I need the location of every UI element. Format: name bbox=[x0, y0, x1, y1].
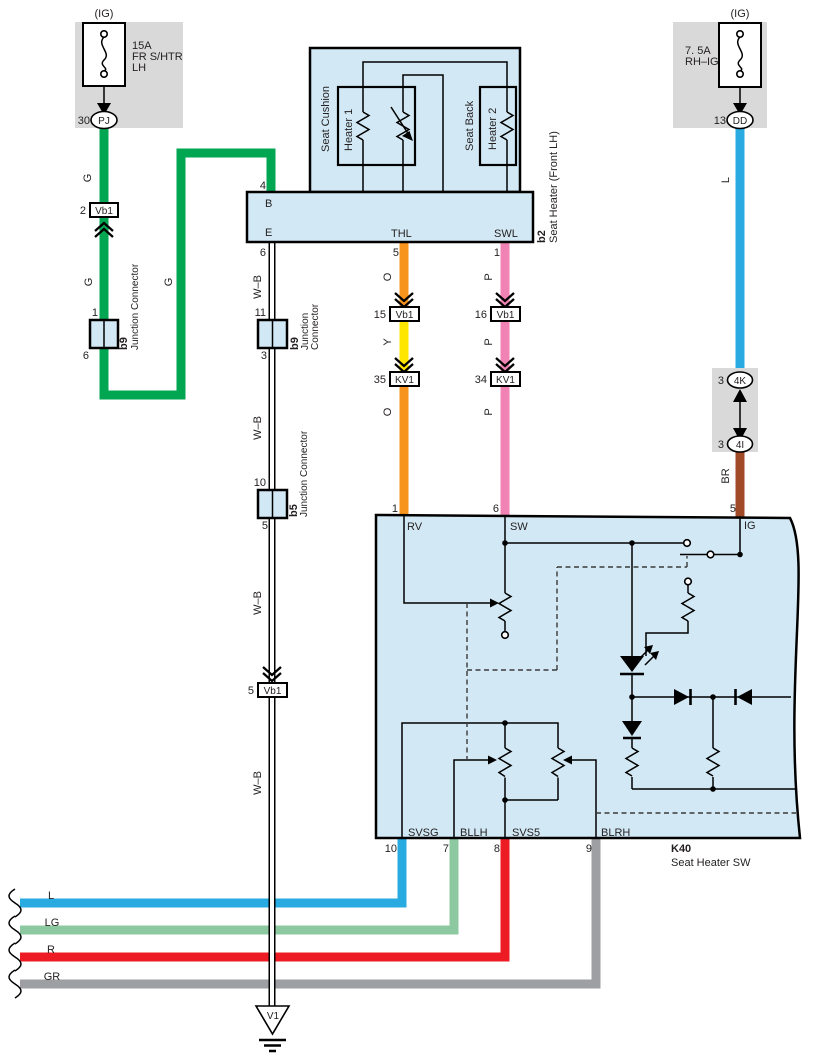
connector-4i-label: 4I bbox=[736, 440, 744, 451]
seat-heater-connector-strip bbox=[247, 192, 533, 242]
wire-label-lg: LG bbox=[45, 917, 60, 929]
wire-continuation-squiggles bbox=[9, 889, 21, 998]
bottom-wire-l bbox=[20, 838, 402, 903]
wire-label-r: R bbox=[47, 944, 55, 956]
ground-icon bbox=[259, 1040, 286, 1051]
b9-left-code: b9 bbox=[118, 337, 130, 350]
bottom-wire-gr bbox=[20, 838, 596, 984]
label-p: P bbox=[483, 273, 495, 280]
pin-thl: 5 bbox=[393, 247, 399, 259]
label-y: Y bbox=[382, 338, 394, 346]
wb-vb1-label: Vb1 bbox=[264, 686, 282, 697]
ground-label: V1 bbox=[267, 1011, 280, 1022]
label-br: BR bbox=[720, 468, 732, 483]
pin-b: 4 bbox=[260, 180, 266, 192]
k40-pin-blrh: 9 bbox=[586, 843, 592, 855]
green-vb1-connector: Vb1 2 bbox=[80, 203, 118, 237]
thl-vb1-pin: 15 bbox=[374, 309, 386, 321]
label-l: L bbox=[720, 177, 732, 183]
terminal-blrh: BLRH bbox=[601, 827, 630, 839]
green-vb1-label: Vb1 bbox=[95, 206, 113, 217]
b5-pin-top: 10 bbox=[254, 477, 266, 489]
connector-4k-pin: 3 bbox=[718, 375, 724, 387]
k40-seat-heater-sw: RV SW IG SVSG BLLH SVS5 BLRH 1 6 5 10 7 … bbox=[376, 503, 800, 869]
thl-connectors: Vb1 15 KV1 35 bbox=[374, 293, 419, 386]
green-vb1-pin: 2 bbox=[80, 205, 86, 217]
terminal-sw: SW bbox=[510, 521, 528, 533]
k40-name: Seat Heater SW bbox=[671, 857, 751, 869]
swl-kv1-pin: 34 bbox=[475, 374, 487, 386]
connector-pj-pin: 30 bbox=[78, 115, 90, 127]
label-o: O bbox=[382, 407, 394, 416]
connector-4i-pin: 3 bbox=[718, 439, 724, 451]
thl-kv1-label: KV1 bbox=[395, 375, 414, 386]
terminal-svsg: SVSG bbox=[408, 827, 439, 839]
connector-4k-4i-block: 4K 3 4I 3 bbox=[712, 368, 758, 452]
label-g: G bbox=[82, 174, 94, 183]
thl-vb1-label: Vb1 bbox=[396, 310, 414, 321]
fuse-right-block: (IG) 7. 5A RH–IG DD 13 bbox=[673, 8, 767, 129]
seat-heater-name: Seat Heater (Front LH) bbox=[548, 131, 560, 243]
seat-heater-wiring-diagram: L LG R GR (IG) 15A FR S/HTR LH PJ 30 (IG… bbox=[0, 0, 816, 1062]
k40-pin-bllh: 7 bbox=[443, 843, 449, 855]
wiring-diagram-page: L LG R GR (IG) 15A FR S/HTR LH PJ 30 (IG… bbox=[0, 0, 816, 1062]
terminal-svs5: SVS5 bbox=[512, 827, 540, 839]
label-wb: W–B bbox=[252, 771, 264, 795]
label-g: G bbox=[83, 278, 95, 287]
k40-code: K40 bbox=[671, 843, 691, 855]
pin-swl: 1 bbox=[494, 247, 500, 259]
junction-b5: 10 5 b5 Junction Connector bbox=[254, 430, 310, 532]
pin-e: 6 bbox=[260, 247, 266, 259]
b5-name: Junction Connector bbox=[299, 430, 310, 517]
terminal-b: B bbox=[265, 198, 272, 210]
terminal-bllh: BLLH bbox=[460, 827, 488, 839]
b9-mid-pin-bottom: 3 bbox=[261, 350, 267, 362]
b9-left-name: Junction Connector bbox=[130, 263, 141, 350]
connector-dd-pin: 13 bbox=[714, 115, 726, 127]
fuse-right-name1: RH–IG bbox=[685, 56, 719, 68]
seat-cushion-label: Seat Cushion bbox=[320, 86, 332, 152]
terminal-rv: RV bbox=[407, 521, 423, 533]
label-wb: W–B bbox=[252, 591, 264, 615]
b9-mid-pin-top: 11 bbox=[255, 307, 266, 319]
wb-vb1-connector: Vb1 5 bbox=[248, 667, 287, 697]
fuse-right-tag: (IG) bbox=[731, 8, 750, 20]
seat-heater-code: b2 bbox=[536, 230, 548, 243]
connector-4k-label: 4K bbox=[734, 376, 747, 387]
wb-vb1-pin: 5 bbox=[248, 685, 254, 697]
b9-left-pin-bottom: 6 bbox=[83, 350, 89, 362]
label-wb: W–B bbox=[252, 416, 264, 440]
heater1-label: Heater 1 bbox=[343, 109, 355, 151]
connector-dd-label: DD bbox=[733, 116, 747, 127]
terminal-thl: THL bbox=[391, 228, 412, 240]
terminal-e: E bbox=[265, 227, 272, 239]
green-wire-run bbox=[104, 128, 271, 395]
thl-kv1-pin: 35 bbox=[374, 374, 386, 386]
swl-vb1-pin: 16 bbox=[475, 309, 487, 321]
label-p: P bbox=[483, 338, 495, 345]
switch-contact bbox=[684, 540, 691, 547]
b9-mid-name2: Connector bbox=[310, 303, 321, 350]
k40-pin-svs5: 8 bbox=[494, 843, 500, 855]
label-o: O bbox=[382, 272, 394, 281]
k40-pin-svsg: 10 bbox=[385, 843, 397, 855]
wire-label-l: L bbox=[48, 890, 54, 902]
swl-kv1-label: KV1 bbox=[496, 375, 515, 386]
terminal-swl: SWL bbox=[494, 228, 518, 240]
seat-heater-front-lh: B E THL SWL Seat Cushion Heater 1 Seat B… bbox=[247, 48, 560, 259]
k40-pin-sw: 6 bbox=[493, 503, 499, 515]
ground-v1: V1 bbox=[256, 1006, 289, 1051]
swl-vb1-label: Vb1 bbox=[497, 310, 515, 321]
heater2-label: Heater 2 bbox=[487, 108, 499, 150]
fuse-left-block: (IG) 15A FR S/HTR LH PJ 30 bbox=[75, 8, 183, 129]
label-p: P bbox=[483, 408, 495, 415]
bottom-wire-r bbox=[20, 838, 505, 957]
fuse-left-name2: LH bbox=[132, 62, 146, 74]
b5-pin-bottom: 5 bbox=[262, 520, 268, 532]
seat-back-label: Seat Back bbox=[464, 100, 476, 151]
label-g: G bbox=[163, 278, 175, 287]
junction-b9-mid: 11 3 b9 Junction Connector bbox=[255, 303, 321, 362]
k40-pin-ig: 5 bbox=[730, 503, 736, 515]
wire-label-gr: GR bbox=[44, 971, 61, 983]
connector-pj-label: PJ bbox=[98, 116, 110, 127]
k40-pin-rv: 1 bbox=[392, 503, 398, 515]
fuse-left-tag: (IG) bbox=[95, 8, 114, 20]
swl-connectors: Vb1 16 KV1 34 bbox=[475, 293, 520, 386]
label-wb: W–B bbox=[252, 275, 264, 299]
terminal-ig: IG bbox=[744, 520, 756, 532]
b9-left-pin-top: 1 bbox=[92, 307, 98, 319]
